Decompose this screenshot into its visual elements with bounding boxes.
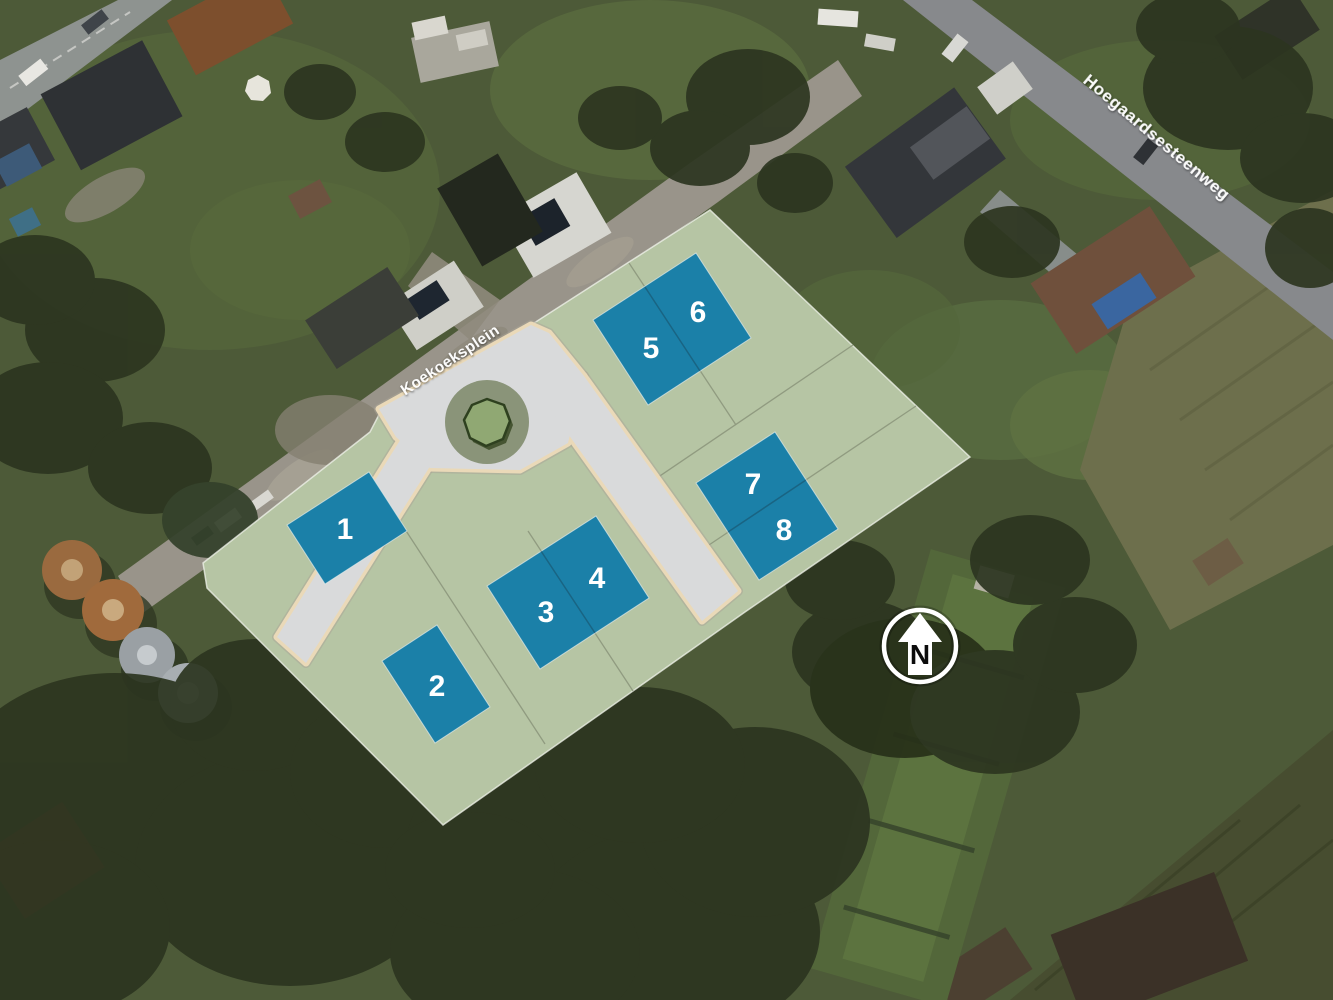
lot-1-number: 1	[337, 513, 354, 546]
plaza-tree	[445, 380, 529, 464]
tree-icon	[464, 399, 510, 446]
truck	[817, 9, 858, 28]
lot-7-number: 7	[745, 468, 762, 501]
lot-6-number: 6	[690, 296, 707, 329]
silo-top	[61, 559, 83, 581]
north-arrow-letter: N	[910, 639, 930, 670]
silo-top	[102, 599, 124, 621]
lot-8-number: 8	[776, 514, 793, 547]
lot-4-number: 4	[589, 562, 606, 595]
site-plan-image: 1 2 3 4 5 6 7 8 Koekoeksplein Hoegaardse…	[0, 0, 1333, 1000]
lot-5-number: 5	[643, 332, 660, 365]
lot-3-number: 3	[538, 596, 555, 629]
silo-top	[137, 645, 157, 665]
site-plan-svg: 1 2 3 4 5 6 7 8 Koekoeksplein Hoegaardse…	[0, 0, 1333, 1000]
lot-2-number: 2	[429, 670, 446, 703]
